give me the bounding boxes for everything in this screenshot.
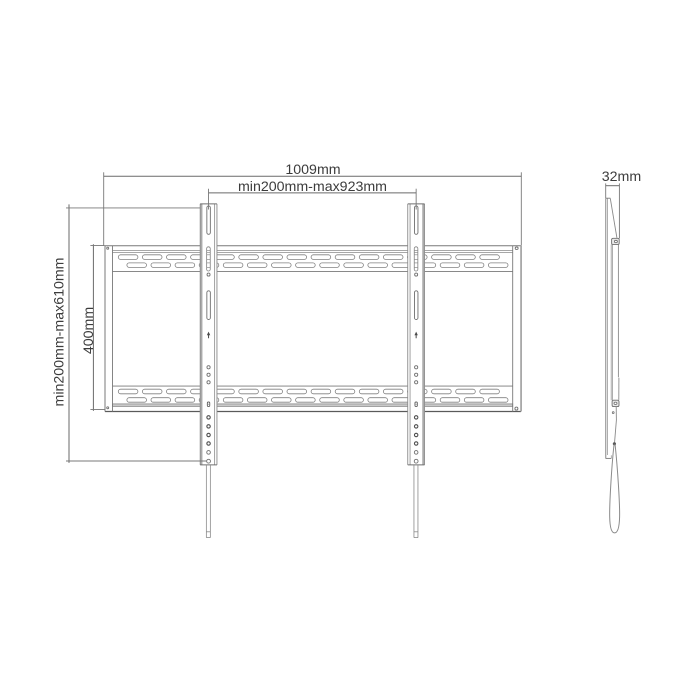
svg-text:400mm: 400mm bbox=[81, 307, 97, 354]
svg-text:min200mm-max610mm: min200mm-max610mm bbox=[52, 257, 68, 406]
svg-text:32mm: 32mm bbox=[602, 169, 641, 185]
svg-text:1009mm: 1009mm bbox=[285, 162, 340, 178]
svg-text:min200mm-max923mm: min200mm-max923mm bbox=[238, 179, 387, 195]
